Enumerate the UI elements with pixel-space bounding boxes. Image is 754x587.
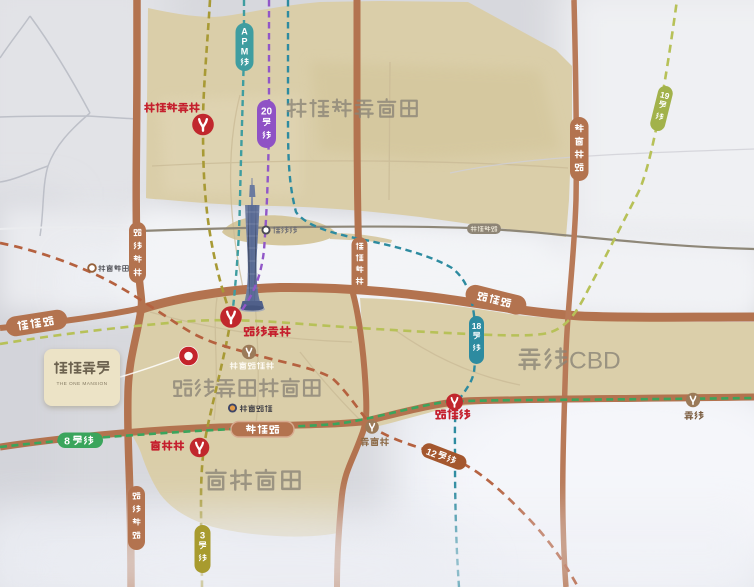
svg-text:THE ONE MANSION: THE ONE MANSION [56, 381, 107, 387]
svg-text:M: M [241, 47, 249, 57]
svg-text:CBD: CBD [569, 348, 621, 375]
svg-text:8: 8 [64, 436, 70, 448]
svg-text:20: 20 [261, 107, 273, 118]
svg-text:A: A [241, 27, 248, 37]
svg-text:3: 3 [200, 531, 205, 542]
svg-text:18: 18 [472, 321, 482, 331]
svg-text:P: P [241, 37, 247, 47]
